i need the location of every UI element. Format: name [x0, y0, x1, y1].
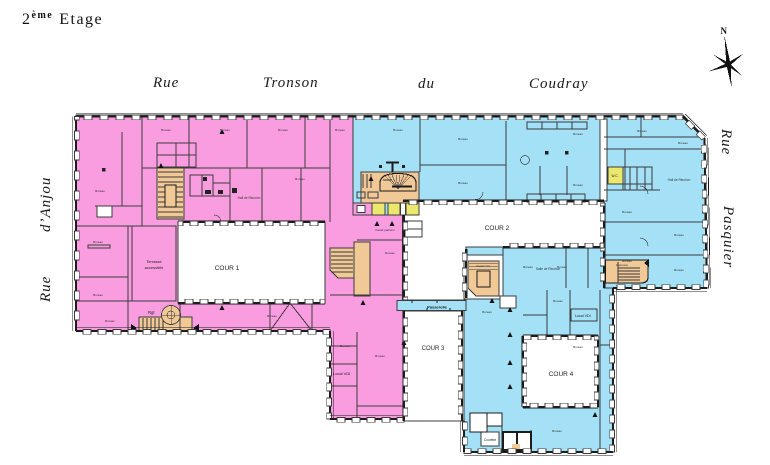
svg-text:Bureau: Bureau: [95, 189, 105, 193]
svg-text:Local VDI: Local VDI: [575, 314, 591, 318]
svg-text:Rue: Rue: [718, 128, 734, 155]
svg-text:Rue: Rue: [38, 276, 54, 303]
svg-text:d’Anjou: d’Anjou: [38, 177, 54, 232]
svg-text:Bureau: Bureau: [220, 128, 230, 132]
svg-text:Bureau: Bureau: [295, 177, 305, 181]
svg-text:Bureau: Bureau: [267, 314, 277, 318]
svg-text:Terrasse: Terrasse: [146, 259, 162, 264]
svg-text:Bureau: Bureau: [552, 429, 562, 433]
svg-text:accessible: accessible: [145, 265, 164, 270]
svg-text:Bureau: Bureau: [393, 128, 403, 132]
svg-text:Bureau: Bureau: [573, 132, 583, 136]
svg-text:Salle de Réunion: Salle de Réunion: [536, 267, 561, 271]
svg-text:Bureau: Bureau: [674, 268, 684, 272]
svg-text:Bureau: Bureau: [553, 299, 563, 303]
svg-text:Bureau: Bureau: [458, 181, 468, 185]
svg-text:Bureau: Bureau: [93, 240, 103, 244]
svg-text:Bureau: Bureau: [637, 129, 647, 133]
svg-text:COUR 4: COUR 4: [549, 371, 574, 378]
svg-text:Bureau: Bureau: [458, 137, 468, 141]
svg-text:Hall de Réunion: Hall de Réunion: [668, 178, 691, 182]
svg-text:Bureau: Bureau: [161, 128, 171, 132]
svg-text:Bureau: Bureau: [573, 345, 583, 349]
svg-text:COUR 1: COUR 1: [215, 265, 240, 272]
svg-text:Pasquier: Pasquier: [720, 205, 736, 268]
svg-text:Bureau: Bureau: [340, 344, 350, 348]
svg-text:COUR 2: COUR 2: [485, 225, 510, 232]
svg-text:Hall de Réunion: Hall de Réunion: [238, 196, 261, 200]
svg-text:Passerelle: Passerelle: [427, 305, 448, 310]
svg-text:Local VDI: Local VDI: [333, 371, 350, 376]
svg-text:Bureau: Bureau: [622, 210, 632, 214]
svg-text:Bureau: Bureau: [573, 183, 583, 187]
svg-text:Bureau: Bureau: [678, 141, 688, 145]
svg-text:Bureau: Bureau: [105, 319, 115, 323]
svg-text:Coudray: Coudray: [529, 76, 589, 92]
svg-text:Bureau: Bureau: [385, 251, 395, 255]
svg-text:Tronson: Tronson: [263, 75, 319, 91]
svg-text:Rue: Rue: [152, 75, 179, 91]
svg-text:COUR 3: COUR 3: [422, 346, 445, 352]
svg-text:Bureau: Bureau: [482, 310, 492, 314]
svg-text:W.C.: W.C.: [612, 174, 619, 178]
svg-text:du: du: [418, 76, 435, 92]
svg-text:Bureau: Bureau: [622, 259, 632, 263]
svg-text:N: N: [721, 26, 728, 36]
svg-text:Bureau: Bureau: [674, 233, 684, 237]
svg-text:travail parisien: travail parisien: [375, 228, 395, 232]
svg-text:Bureau: Bureau: [375, 354, 385, 358]
svg-text:Bureau: Bureau: [278, 128, 288, 132]
svg-text:Rgt: Rgt: [148, 310, 155, 315]
svg-text:Ascenseur: Ascenseur: [616, 263, 628, 267]
svg-text:Bureau: Bureau: [93, 293, 103, 297]
svg-text:Bureau: Bureau: [523, 265, 533, 269]
svg-text:Courette: Courette: [484, 438, 496, 442]
svg-text:Bureau: Bureau: [335, 128, 345, 132]
